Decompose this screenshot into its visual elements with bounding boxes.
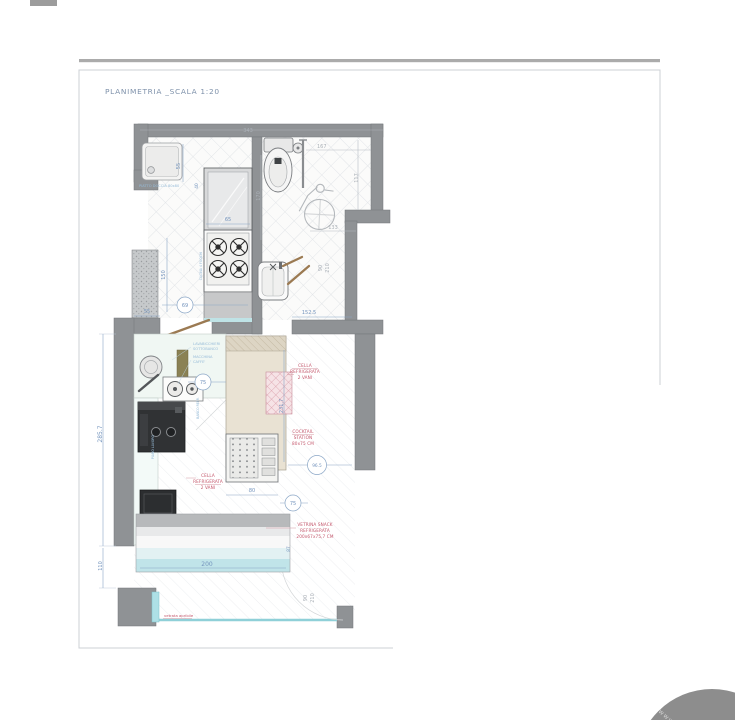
floor-plan-page: PLANIMETRIA _SCALA 1:20 PIATTO DOCCIA 80… — [0, 0, 735, 720]
dim-pass-75a: 75 — [200, 380, 206, 386]
dim-pass-75b: 75 — [290, 501, 296, 507]
wall-right-lower — [355, 334, 375, 470]
window-edge-fragment — [30, 0, 57, 6]
exterior-patch — [356, 222, 384, 320]
dim-bagno-170: 170 — [256, 191, 262, 201]
dim-banco-87: 87 — [286, 546, 292, 552]
cella2-line2: REFRIGERATA — [193, 479, 223, 484]
bathroom-sink — [258, 262, 288, 300]
dim-frigo-65: 65 — [225, 217, 231, 223]
cella1-line1: CELLA — [298, 363, 312, 368]
dim-bagno-133: 133 — [328, 225, 338, 231]
vetrina-line3: 200x67x75,7 CM — [296, 534, 333, 539]
dim-sx-2857: 285.7 — [97, 425, 104, 442]
flush-plate — [275, 158, 282, 164]
cella1-line2: REFRIGERATA — [290, 369, 320, 374]
dim-porta1-210: 210 — [325, 263, 331, 273]
dim-bagno-117: 117 — [354, 173, 360, 183]
shower-drain — [148, 167, 155, 174]
cooktop-base — [204, 292, 252, 320]
label-piano: PIANO LAVORO — [151, 434, 155, 459]
cocktail-line1: COCKTAIL — [292, 429, 314, 434]
dim-muro-55: 55 — [144, 309, 150, 315]
dim-top-343: 343 — [243, 128, 253, 134]
openable-glass-panel — [152, 592, 159, 622]
dim-sala-2317: 231.7 — [279, 399, 285, 413]
dim-bagno-167: 167 — [317, 144, 327, 150]
dim-shower-40: 40 — [194, 183, 200, 189]
shower-tray — [142, 143, 182, 180]
floor-plan-drawing: PLANIMETRIA _SCALA 1:20 PIATTO DOCCIA 80… — [0, 0, 735, 720]
cooktop — [204, 230, 252, 322]
label-cucina: CUCINA 4 FUOCHI — [199, 252, 203, 281]
dim-banco-200: 200 — [201, 561, 213, 568]
wall-right-upper — [371, 124, 383, 212]
drawing-title: PLANIMETRIA _SCALA 1:20 — [105, 87, 220, 96]
wall-kitchen-divider — [252, 137, 262, 334]
label-counter-b2: CAFFE' — [193, 360, 205, 364]
dim-station-80: 80 — [249, 488, 255, 494]
wall-entrance-right-block — [337, 606, 353, 628]
wall-bathroom-bottom — [292, 320, 383, 334]
cocktail-line2: STATION — [294, 435, 313, 440]
counter-front-edge — [204, 318, 252, 322]
cocktail-line3: 80x75 CM — [292, 441, 314, 446]
dim-porta1-90: 90 — [318, 265, 324, 271]
wall-mid-left — [132, 318, 160, 334]
wall-right-mid — [345, 221, 357, 320]
espresso-machine — [138, 402, 185, 452]
wall-partition-stipple — [132, 250, 158, 318]
shower-label: PIATTO DOCCIA 80x80 — [139, 184, 180, 188]
vetrina-line1: VETRINA SNACK — [297, 522, 332, 527]
vetrata-label: vetrata apribile — [164, 613, 194, 618]
dim-porta2-90: 90 — [303, 595, 309, 601]
label-counter-a1: LAVABICCHIERI — [193, 342, 220, 346]
wall-bottom-left-block — [118, 588, 156, 626]
wall-top — [138, 124, 383, 137]
label-counter-a2: SOTTOBANCO — [193, 347, 218, 351]
dim-sx-110: 110 — [98, 561, 104, 571]
dim-shower-55: 55 — [176, 163, 182, 169]
cella1-line3: 2 VANI — [298, 375, 313, 380]
dim-pass-965: 96.5 — [312, 463, 322, 469]
dim-corr-150: 150 — [161, 270, 167, 280]
cocktail-station-machine — [226, 434, 278, 482]
label-counter-b1: MACCHINA — [193, 355, 213, 359]
white-overlay — [393, 385, 735, 720]
label-banco: BANCO REFR. — [196, 397, 200, 419]
cella2-line3: 2 VANI — [201, 485, 216, 490]
undercounter-fridge — [140, 490, 176, 517]
toolbar-edge-line — [79, 59, 660, 62]
dim-porta2-210: 210 — [310, 593, 316, 603]
vetrina-line2: REFRIGERATA — [300, 528, 330, 533]
callout-cocktail: COCKTAIL STATION 80x75 CM — [292, 429, 314, 446]
wall-left-main — [114, 318, 134, 546]
cella2-line1: CELLA — [201, 473, 215, 478]
dim-lavabo-1525: 152.5 — [302, 310, 316, 316]
snack-display-counter — [136, 514, 290, 572]
dim-pass-69: 69 — [182, 303, 188, 309]
